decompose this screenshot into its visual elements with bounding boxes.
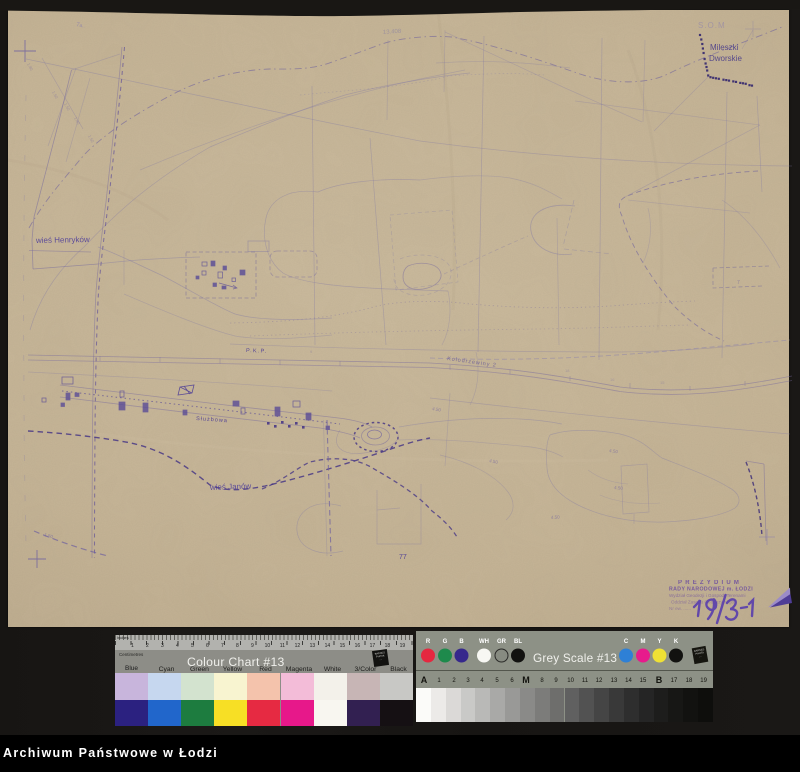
svg-text:13.408: 13.408 (383, 29, 402, 36)
svg-text:PREZYDIUM: PREZYDIUM (678, 580, 742, 586)
svg-text:7a..: 7a.. (76, 22, 86, 29)
svg-text:wieś Henryków: wieś Henryków (35, 235, 90, 245)
svg-text:1.80: 1.80 (26, 62, 34, 72)
svg-text:4.50: 4.50 (614, 485, 624, 491)
svg-text:1.50: 1.50 (63, 102, 71, 112)
svg-text:16: 16 (610, 377, 615, 382)
svg-text:Kolodrzewiny 2: Kolodrzewiny 2 (447, 356, 497, 369)
svg-text:77: 77 (399, 554, 407, 561)
svg-text:wieś Janów: wieś Janów (209, 482, 252, 492)
svg-text:Dworskie: Dworskie (709, 54, 742, 63)
svg-text:S.O.M: S.O.M (698, 21, 726, 30)
svg-text:Wydział Geodezji i Gospod. Ter: Wydział Geodezji i Gospod. Terenami (669, 593, 745, 598)
svg-text:7: 7 (737, 280, 740, 286)
svg-text:Nr ew. ......: Nr ew. ...... (669, 606, 691, 611)
svg-text:1.50: 1.50 (87, 134, 95, 144)
svg-text:Służbowa: Służbowa (196, 416, 228, 424)
svg-text:P.K.P.: P.K.P. (246, 348, 268, 355)
svg-text:4.50: 4.50 (432, 406, 442, 413)
svg-text:Mileszki: Mileszki (710, 43, 739, 52)
svg-text:15: 15 (660, 380, 665, 385)
svg-text:4.50: 4.50 (489, 458, 499, 465)
svg-text:9: 9 (310, 349, 313, 354)
svg-text:1.50: 1.50 (51, 90, 59, 100)
svg-text:RADY NARODOWEJ m. ŁODZI: RADY NARODOWEJ m. ŁODZI (669, 587, 753, 593)
svg-text:18: 18 (565, 368, 570, 373)
svg-text:1.50: 1.50 (44, 532, 54, 539)
svg-text:4.50: 4.50 (609, 448, 619, 454)
svg-text:4.50: 4.50 (551, 514, 561, 520)
